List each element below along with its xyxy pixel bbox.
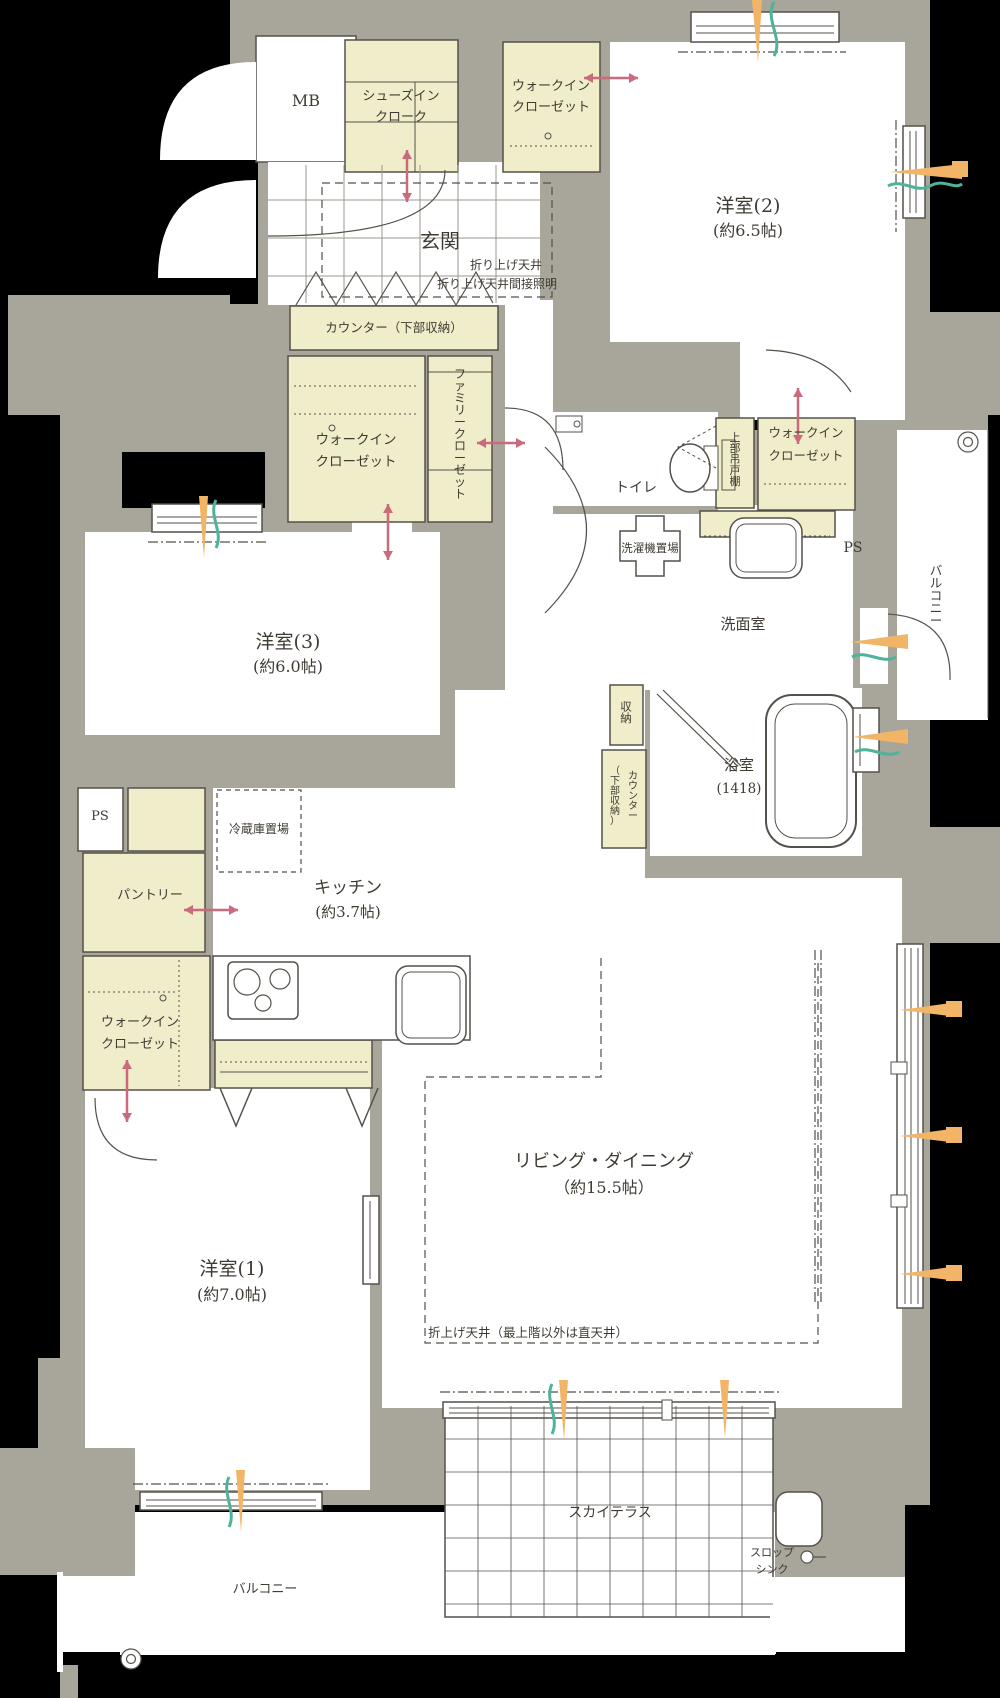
counter-lower-storage <box>602 750 646 848</box>
window-yo2-top <box>691 12 839 42</box>
label-senmen: 洗面室 <box>720 615 765 633</box>
wall-right-ld-corner <box>930 825 1000 943</box>
label-mb: MB <box>292 91 320 110</box>
window-ld-south-mullion <box>662 1400 672 1420</box>
window-bath <box>853 708 879 772</box>
label-yoshitsu2-size: (約6.5帖) <box>713 221 783 240</box>
label-fridge: 冷蔵庫置場 <box>229 822 289 836</box>
label-sky-terrace: スカイテラス <box>568 1505 651 1521</box>
closet-shoes-in-cloak <box>345 40 458 172</box>
slop-sink <box>776 1492 822 1546</box>
window-yo1-east <box>363 1196 379 1284</box>
sun-tab-ld-3 <box>946 1265 962 1281</box>
hallway <box>505 300 553 720</box>
wall-patch-toilet <box>553 506 718 514</box>
drain-bottom <box>121 1649 141 1669</box>
floor-plan: MB玄関折り上げ天井折り上げ天井間接照明カウンター（下部収納）シューズインクロー… <box>0 0 1000 1698</box>
wall-balcony-left-stub <box>38 1358 88 1453</box>
balcony-rail-terrace <box>770 1614 776 1654</box>
kitchen-sink <box>396 966 466 1044</box>
floor-plan-svg: MB玄関折り上げ天井折り上げ天井間接照明カウンター（下部収納）シューズインクロー… <box>0 0 1000 1698</box>
balcony-rail-left <box>57 1572 63 1672</box>
shaft-above-yo3 <box>122 452 265 508</box>
label-pantry: パントリー <box>117 888 183 903</box>
label-toilet: トイレ <box>615 480 657 496</box>
room-yo2-nook <box>740 342 905 420</box>
wall-patch-yo1-corner <box>60 1448 135 1576</box>
label-balcony-bottom: バルコニー <box>233 1582 298 1597</box>
outside-right-mid <box>930 715 1000 827</box>
balcony-rail-bottom <box>120 1648 775 1655</box>
outside-right-lower <box>930 943 1000 1698</box>
label-living-dining-size: （約15.5帖） <box>554 1178 654 1197</box>
label-yoshitsu3-size: (約6.0帖) <box>253 657 323 676</box>
label-balcony-right: バルコニー <box>930 563 943 628</box>
outside-bottom-left <box>0 1575 60 1698</box>
outside-top-right <box>930 0 1000 312</box>
pantry-upper <box>128 788 205 851</box>
label-ps-right: PS <box>843 540 862 556</box>
label-upper-cabinet: 上部吊戸棚 <box>730 431 741 488</box>
closet-yo1-top <box>215 1040 372 1088</box>
slop-faucet <box>801 1551 813 1563</box>
toilet-bowl <box>670 444 710 492</box>
toilet-hand-sink <box>556 416 582 432</box>
sun-tab-ld-2 <box>946 1127 962 1143</box>
window-ld-east-tab-1 <box>891 1062 907 1074</box>
balcony-right <box>897 430 988 720</box>
label-shuno: 収納 <box>620 699 632 725</box>
label-counter-genkan: カウンター（下部収納） <box>325 320 463 335</box>
label-counter-v-2: （下部収納） <box>610 765 620 827</box>
label-bath-size: (1418) <box>717 781 762 797</box>
window-ld-east <box>897 944 923 1308</box>
bathtub <box>766 695 856 847</box>
label-bath: 浴室 <box>724 756 754 774</box>
sun-tab-yo2-right <box>952 161 968 177</box>
window-ld-east-tab-2 <box>891 1195 907 1207</box>
label-genkan: 玄関 <box>420 229 460 253</box>
label-family-closet: ファミリークローゼット <box>454 367 466 501</box>
label-counter-v-1: カウンター <box>628 770 638 822</box>
label-yoshitsu3: 洋室(3) <box>256 631 321 653</box>
label-yoshitsu2: 洋室(2) <box>716 195 781 217</box>
label-living-dining: リビング・ダイニング <box>514 1151 694 1172</box>
label-yoshitsu1-size: (約7.0帖) <box>197 1285 267 1304</box>
slop-corridor <box>770 1577 905 1652</box>
wash-basin <box>730 518 802 578</box>
label-yoshitsu1: 洋室(1) <box>200 1258 265 1280</box>
label-kitchen-size: (約3.7帖) <box>315 903 381 921</box>
label-oriage-tenjo: 折り上げ天井 <box>470 257 542 272</box>
label-kitchen: キッチン <box>314 878 382 898</box>
label-ps-left: PS <box>91 809 109 824</box>
label-oriage-ld: 折上げ天井（最上階以外は直天井） <box>428 1325 628 1340</box>
label-oriage-shomei: 折り上げ天井間接照明 <box>437 276 557 291</box>
drain-right <box>958 432 978 452</box>
ld-upper <box>640 878 902 958</box>
sun-tab-ld-1 <box>946 1001 962 1017</box>
room-kitchen <box>213 788 470 960</box>
label-laundry: 洗濯機置場 <box>621 541 679 555</box>
outside-right-strip <box>988 415 1000 715</box>
outside-left-notch <box>0 415 60 540</box>
room-yoshitsu2 <box>610 42 905 342</box>
